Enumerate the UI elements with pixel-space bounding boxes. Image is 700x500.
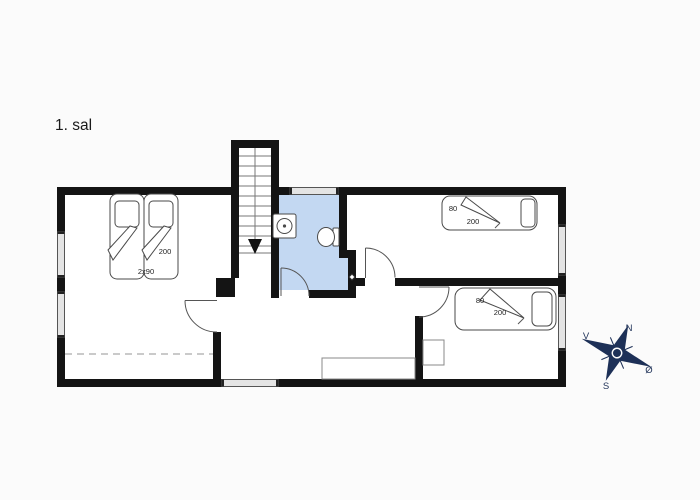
window-left-lower bbox=[58, 292, 65, 337]
bed-width-label: 80 bbox=[449, 204, 457, 213]
bed-width-label: 2x90 bbox=[138, 267, 154, 276]
wall-bathroom-east-upper bbox=[339, 195, 347, 258]
floor-title: 1. sal bbox=[55, 117, 92, 134]
bed-width-label: 80 bbox=[476, 296, 484, 305]
wall-bedroom-left-east bbox=[213, 332, 221, 387]
wall-hall-east bbox=[415, 316, 423, 387]
wall-right bbox=[558, 187, 566, 387]
bed-length-label: 200 bbox=[159, 247, 172, 256]
wall-door-jamb-block bbox=[216, 278, 235, 297]
floor-plan-canvas: 1. sal bbox=[0, 0, 700, 500]
window-bathroom bbox=[290, 188, 338, 195]
wall-rooms-divider-east bbox=[395, 278, 558, 286]
pillow-icon bbox=[115, 201, 139, 227]
compass-label-east: Ø bbox=[645, 365, 653, 376]
window-right-upper bbox=[559, 225, 566, 275]
wall-bathroom-south bbox=[309, 290, 356, 298]
compass-label-south: S bbox=[603, 381, 609, 392]
bed-length-label: 200 bbox=[494, 308, 507, 317]
pillow-icon bbox=[149, 201, 173, 227]
wall-left bbox=[57, 187, 65, 387]
toilet-icon bbox=[318, 228, 340, 247]
compass-label-west: V bbox=[583, 331, 590, 342]
window-bottom bbox=[222, 380, 278, 387]
compass-label-north: N bbox=[626, 323, 633, 334]
window-right-lower bbox=[559, 295, 566, 350]
bed-length-label: 200 bbox=[467, 217, 480, 226]
sink-icon bbox=[273, 214, 296, 238]
pillow-icon bbox=[532, 292, 552, 326]
stairwell-wall-west bbox=[231, 140, 239, 278]
wall-top-west bbox=[57, 187, 231, 195]
window-left-upper bbox=[58, 232, 65, 277]
single-bed-top-right bbox=[442, 196, 537, 230]
wall-bottom bbox=[57, 379, 566, 387]
pillow-icon bbox=[521, 199, 535, 227]
floor-plan-page: 1. sal bbox=[0, 0, 700, 500]
